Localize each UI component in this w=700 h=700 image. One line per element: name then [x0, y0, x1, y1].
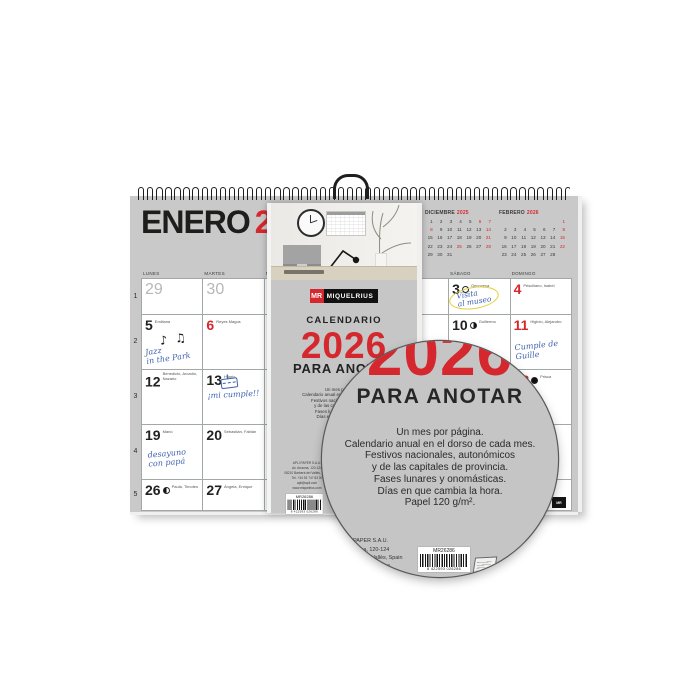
magnified-barcode: MR26286 8 422593 026286 — [418, 547, 470, 572]
week-number: 5 — [130, 479, 141, 510]
barcode-digits: 8 422593 026286 — [288, 510, 322, 514]
binding-loop-icon — [556, 187, 562, 200]
mini-day: 24 — [509, 251, 519, 259]
barcode-bars-icon — [288, 500, 322, 510]
mini-day: 25 — [454, 243, 464, 251]
mini-day: 23 — [499, 251, 509, 259]
mini-day: 16 — [435, 234, 445, 242]
binding-loop-icon — [202, 187, 208, 200]
brand-mark-icon: MR — [310, 289, 324, 303]
note-text: ¡mi cumple!! — [208, 389, 260, 401]
mini-calendar-title: FEBRERO2026 — [499, 210, 567, 216]
mini-day: 14 — [483, 226, 493, 234]
binding-loop-icon — [192, 187, 198, 200]
text-line: Calendario anual en el dorso de cada mes… — [322, 439, 558, 451]
mini-day: 29 — [425, 251, 435, 259]
mini-day: 26 — [464, 243, 474, 251]
first-moon-icon — [163, 487, 170, 494]
day-cell: 13Hilario¡mi cumple!! — [203, 370, 264, 425]
mini-day: 9 — [499, 234, 509, 242]
mini-day: 23 — [435, 243, 445, 251]
spiral-binding — [138, 187, 570, 200]
mini-day: 8 — [557, 226, 567, 234]
mini-calendar-grid: 1234567891011121314151617181920212223242… — [425, 218, 493, 259]
binding-loop-icon — [220, 187, 226, 200]
magnifier-circle: 2026 PARA ANOTAR Un mes por página.Calen… — [322, 341, 558, 577]
binding-loop-icon — [183, 187, 189, 200]
mini-day: 13 — [538, 234, 548, 242]
day-number: 29 — [145, 281, 163, 298]
mini-day: 14 — [548, 234, 558, 242]
cover-photo — [271, 203, 417, 280]
binding-loop-icon — [447, 187, 453, 200]
day-cell: 29 — [142, 279, 203, 315]
day-number: 27 — [206, 482, 222, 498]
day-number: 30 — [206, 281, 224, 298]
binding-loop-icon — [147, 187, 153, 200]
text-line: y de las capitales de provincia. — [322, 462, 558, 474]
saints-names: Higinio, Alejandro — [530, 320, 561, 325]
text-line: Fases lunares y onomásticas. — [322, 474, 558, 486]
day-cell: 20Sebastián, Fabián — [203, 425, 264, 480]
day-cell: 19Mariodesayunocon papá — [142, 425, 203, 480]
wall-clock-icon — [297, 209, 325, 237]
mini-day — [509, 218, 519, 226]
binding-loop-icon — [374, 187, 380, 200]
mini-day: 22 — [557, 243, 567, 251]
mini-day — [528, 218, 538, 226]
binding-loop-icon — [456, 187, 462, 200]
binding-loop-icon — [156, 187, 162, 200]
binding-loop-icon — [229, 187, 235, 200]
mini-day: 4 — [454, 218, 464, 226]
mini-day: 20 — [538, 243, 548, 251]
binding-loop-icon — [465, 187, 471, 200]
weekday-label: SÁBADO — [448, 271, 509, 276]
mini-day — [518, 218, 528, 226]
saints-names: Guillermo — [479, 320, 496, 325]
binding-loop-icon — [265, 187, 271, 200]
miquelrius-logo: MR MIQUELRIUS — [271, 289, 417, 303]
binding-loop-icon — [429, 187, 435, 200]
product-photo: ENERO2026 DICIEMBRE202512345678910111213… — [0, 0, 700, 700]
mini-day: 2 — [499, 226, 509, 234]
saints-names: Ángela, Enrique — [224, 485, 252, 490]
barcode-digits: 8 422593 026286 — [420, 567, 468, 572]
day-number: 11 — [514, 317, 529, 333]
mini-calendar: FEBRERO202612345678910111213141516171819… — [499, 210, 567, 259]
mini-day: 17 — [444, 234, 454, 242]
mini-day: 15 — [557, 234, 567, 242]
binding-loop-icon — [392, 187, 398, 200]
binding-loop-icon — [401, 187, 407, 200]
brand-name: MIQUELRIUS — [327, 293, 374, 300]
mini-calendar: DICIEMBRE2025123456789101112131415161718… — [425, 210, 493, 259]
saints-names: Benedicto, Arcadio, Nazario — [163, 372, 199, 381]
mini-day: 11 — [518, 234, 528, 242]
mini-day — [483, 251, 493, 259]
text-line: APLI PAPER S.A.U. — [322, 537, 420, 546]
binding-loop-icon — [283, 187, 289, 200]
weekday-label: LUNES — [141, 271, 202, 276]
saints-names: Reyes Magos — [216, 320, 240, 325]
text-line: 08210 Barberà del Vallès, Spain — [322, 554, 420, 563]
binding-loop-icon — [347, 187, 353, 200]
mini-day: 15 — [425, 234, 435, 242]
magnified-publisher-info: APLI PAPER S.A.U.Av. Arraona, 120-124082… — [322, 537, 420, 577]
mini-day — [557, 251, 567, 259]
saints-names: Sebastián, Fabián — [224, 430, 256, 435]
mini-day: 19 — [528, 243, 538, 251]
week-number: 2 — [130, 314, 141, 369]
mini-day: 18 — [518, 243, 528, 251]
mini-day: 22 — [425, 243, 435, 251]
binding-loop-icon — [211, 187, 217, 200]
mini-day: 6 — [538, 226, 548, 234]
weekday-label: MARTES — [202, 271, 263, 276]
mini-day — [538, 218, 548, 226]
mini-day: 19 — [464, 234, 474, 242]
mini-day: 31 — [444, 251, 454, 259]
wall-calendar-icon — [326, 211, 366, 236]
binding-loop-icon — [510, 187, 516, 200]
day-number: 19 — [145, 427, 161, 443]
binding-loop-icon — [365, 187, 371, 200]
keyboard-icon — [284, 270, 324, 274]
text-line: Av. Arraona, 120-124 — [322, 546, 420, 555]
binding-loop-icon — [174, 187, 180, 200]
binding-loop-icon — [565, 187, 570, 200]
mini-day — [499, 218, 509, 226]
mini-day: 4 — [518, 226, 528, 234]
day-cell: 5Emiliana♪ ♫Jazzin the Park — [142, 315, 203, 370]
mini-year: 2026 — [527, 210, 539, 216]
mini-day: 10 — [444, 226, 454, 234]
binding-loop-icon — [483, 187, 489, 200]
day-cell: 3GenovevaVisitaal museo — [449, 279, 510, 315]
mini-day: 6 — [474, 218, 484, 226]
mini-day — [454, 251, 464, 259]
mini-day: 5 — [464, 218, 474, 226]
mini-day: 9 — [435, 226, 445, 234]
barcode: MR26286 8 422593 026286 — [286, 494, 323, 514]
mini-day: 26 — [528, 251, 538, 259]
day-cell: 26Paula, Timoteo — [142, 480, 203, 511]
binding-loop-icon — [338, 187, 344, 200]
mini-day: 5 — [528, 226, 538, 234]
binding-loop-icon — [474, 187, 480, 200]
mini-day — [464, 251, 474, 259]
binding-loop-icon — [356, 187, 362, 200]
handwritten-note: desayunocon papá — [147, 447, 187, 468]
mini-day: 12 — [528, 234, 538, 242]
magnified-title: PARA ANOTAR — [322, 385, 558, 409]
mini-day: 18 — [454, 234, 464, 242]
text-line: Un mes por página. — [322, 427, 558, 439]
day-number: 5 — [145, 317, 153, 333]
binding-loop-icon — [438, 187, 444, 200]
text-line: Festivos nacionales, autonómicos — [322, 450, 558, 462]
binding-loop-icon — [410, 187, 416, 200]
mini-day: 2 — [435, 218, 445, 226]
mini-day: 28 — [483, 243, 493, 251]
binding-loop-icon — [537, 187, 543, 200]
mini-day: 12 — [464, 226, 474, 234]
mini-day: 7 — [548, 226, 558, 234]
week-number: 1 — [130, 278, 141, 314]
binding-loop-icon — [256, 187, 262, 200]
day-cell: 6Reyes Magos — [203, 315, 264, 370]
binding-loop-icon — [301, 187, 307, 200]
spec-label-icon — [473, 556, 498, 572]
last-moon-icon — [470, 322, 477, 329]
day-cell: 12Benedicto, Arcadio, Nazario — [142, 370, 203, 425]
music-notes-icon: ♪ ♫ — [159, 332, 188, 346]
saints-names: Emiliana — [155, 320, 170, 325]
mini-day: 3 — [509, 226, 519, 234]
mini-day: 3 — [444, 218, 454, 226]
day-number: 10 — [452, 317, 468, 333]
mini-day: 17 — [509, 243, 519, 251]
mini-calendar-grid: 1234567891011121314151617181920212223242… — [499, 218, 567, 259]
mini-day — [548, 218, 558, 226]
mini-day: 27 — [474, 243, 484, 251]
mini-day — [474, 251, 484, 259]
note-line: ¡mi cumple!! — [208, 389, 260, 401]
magnified-year: 2026 — [322, 341, 558, 385]
day-number: 12 — [145, 374, 161, 390]
mini-month: FEBRERO — [499, 210, 525, 216]
day-number: 4 — [514, 281, 522, 297]
day-number: 26 — [145, 482, 161, 498]
day-cell: 30 — [203, 279, 264, 315]
mini-day: 8 — [425, 226, 435, 234]
saints-names: Paula, Timoteo — [172, 485, 199, 490]
binding-loop-icon — [329, 187, 335, 200]
mini-day: 1 — [557, 218, 567, 226]
barcode-bars-icon — [420, 554, 468, 567]
text-line: Días en que cambia la hora. — [322, 486, 558, 498]
day-number: 20 — [206, 427, 222, 443]
text-line: Papel 120 g/m². — [322, 497, 558, 509]
logo-bar: MR MIQUELRIUS — [310, 289, 379, 303]
mini-month: DICIEMBRE — [425, 210, 455, 216]
mini-day: 21 — [548, 243, 558, 251]
mini-day: 21 — [483, 234, 493, 242]
mini-day: 25 — [518, 251, 528, 259]
weekday-label: DOMINGO — [510, 271, 571, 276]
binding-loop-icon — [310, 187, 316, 200]
mini-day: 20 — [474, 234, 484, 242]
mini-day: 16 — [499, 243, 509, 251]
binding-loop-icon — [320, 187, 326, 200]
mini-day: 30 — [435, 251, 445, 259]
mini-day: 24 — [444, 243, 454, 251]
handwritten-note: ¡mi cumple!! — [207, 373, 260, 401]
saints-names: Prisciliano, Isabel — [523, 284, 554, 289]
day-number: 6 — [206, 317, 214, 333]
binding-loop-icon — [383, 187, 389, 200]
mini-day: 28 — [548, 251, 558, 259]
binding-loop-icon — [519, 187, 525, 200]
note-line: con papá — [148, 456, 187, 468]
branch-icon — [361, 203, 417, 273]
week-number-column: 12345 — [130, 278, 141, 510]
mini-day: 7 — [483, 218, 493, 226]
magnified-description: Un mes por página.Calendario anual en el… — [322, 427, 558, 509]
mini-day: 13 — [474, 226, 484, 234]
binding-loop-icon — [238, 187, 244, 200]
saints-names: Mario — [163, 430, 173, 435]
binding-loop-icon — [247, 187, 253, 200]
binding-loop-icon — [492, 187, 498, 200]
mini-day: 11 — [454, 226, 464, 234]
day-cell: 27Ángela, Enrique — [203, 480, 264, 511]
monitor-icon — [283, 245, 321, 266]
binding-loop-icon — [138, 187, 144, 200]
mini-day: 27 — [538, 251, 548, 259]
binding-loop-icon — [528, 187, 534, 200]
note-text: desayunocon papá — [147, 447, 187, 468]
handwritten-note: ♪ ♫Jazzin the Park — [143, 332, 191, 366]
binding-loop-icon — [292, 187, 298, 200]
week-number: 4 — [130, 424, 141, 479]
week-number: 3 — [130, 369, 141, 424]
binding-loop-icon — [419, 187, 425, 200]
text-line: apli@apli.com — [322, 571, 420, 577]
day-cell: 4Prisciliano, Isabel — [511, 279, 572, 315]
mini-calendar-title: DICIEMBRE2025 — [425, 210, 493, 216]
text-line: Tel. +34 93 747 83 00 — [322, 563, 420, 572]
mini-year: 2025 — [457, 210, 469, 216]
mini-day: 1 — [425, 218, 435, 226]
cake-doodle-icon — [221, 377, 239, 389]
binding-loop-icon — [165, 187, 171, 200]
binding-loop-icon — [547, 187, 553, 200]
binding-loop-icon — [501, 187, 507, 200]
mini-day: 10 — [509, 234, 519, 242]
binding-loop-icon — [274, 187, 280, 200]
